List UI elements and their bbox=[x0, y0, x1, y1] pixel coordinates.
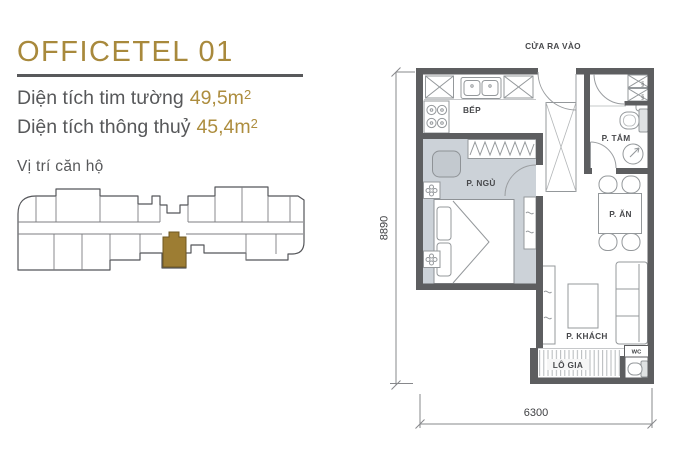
washer-top-label: MW bbox=[641, 80, 645, 87]
bathroom-label: P. TẮM bbox=[602, 133, 631, 143]
area-info: Diện tích tim tường49,5m2 Diện tích thôn… bbox=[17, 82, 258, 140]
page-title: OFFICETEL 01 bbox=[17, 36, 234, 69]
building-outline bbox=[18, 187, 304, 270]
wc-label: WC bbox=[632, 350, 642, 356]
floorplan-page: OFFICETEL 01 Diện tích tim tường49,5m2 D… bbox=[0, 0, 675, 450]
nightstand-top bbox=[424, 182, 441, 199]
area-value-2: 45,4m bbox=[196, 116, 250, 138]
bedroom-label: P. NGỦ bbox=[466, 177, 495, 188]
area-sup-2: 2 bbox=[251, 116, 258, 131]
building-location-diagram bbox=[10, 182, 312, 278]
loggia-label: LÔ GIA bbox=[553, 359, 583, 370]
entrance-label: CỬA RA VÀO bbox=[525, 40, 581, 51]
bathroom-door-arc bbox=[591, 142, 617, 168]
apartment-floorplan: MW MW bbox=[375, 10, 675, 440]
kitchen-label: BẾP bbox=[463, 105, 481, 115]
area-label-1: Diện tích tim tường bbox=[17, 87, 184, 109]
dining-chair bbox=[599, 176, 617, 193]
bedside-table bbox=[433, 151, 461, 177]
title-underline bbox=[17, 74, 303, 77]
tv-console bbox=[541, 266, 555, 344]
dining-chair bbox=[622, 234, 640, 251]
dining-label: P. ĂN bbox=[609, 209, 632, 219]
wc-toilet bbox=[628, 361, 648, 377]
shower bbox=[623, 144, 643, 164]
hall-cabinet bbox=[546, 103, 576, 192]
bathroom-closet-door-arc bbox=[594, 74, 624, 104]
width-dimension: 6300 bbox=[524, 407, 548, 419]
dressing-console bbox=[524, 197, 536, 249]
dining-chair bbox=[622, 176, 640, 193]
area-line-1: Diện tích tim tường49,5m2 bbox=[17, 82, 258, 111]
area-sup-1: 2 bbox=[244, 87, 251, 102]
dining-chair bbox=[599, 234, 617, 251]
living-label: P. KHÁCH bbox=[566, 331, 607, 341]
washing-machine-stack: MW MW bbox=[628, 75, 649, 101]
area-value-1: 49,5m bbox=[190, 87, 244, 109]
area-line-2: Diện tích thông thuỷ45,4m2 bbox=[17, 111, 258, 140]
wardrobe bbox=[468, 140, 536, 159]
coffee-table bbox=[568, 284, 598, 328]
highlighted-unit bbox=[163, 232, 186, 267]
kitchen-counter bbox=[424, 76, 536, 100]
nightstand-bottom bbox=[424, 251, 441, 268]
washer-bottom-label: MW bbox=[641, 93, 645, 100]
bathroom-toilet bbox=[620, 109, 648, 132]
location-label: Vị trí căn hộ bbox=[17, 158, 104, 176]
area-label-2: Diện tích thông thuỷ bbox=[17, 116, 190, 138]
stove bbox=[424, 101, 449, 133]
height-dimension: 8890 bbox=[379, 216, 391, 240]
bed bbox=[434, 200, 514, 284]
sofa bbox=[616, 262, 648, 344]
